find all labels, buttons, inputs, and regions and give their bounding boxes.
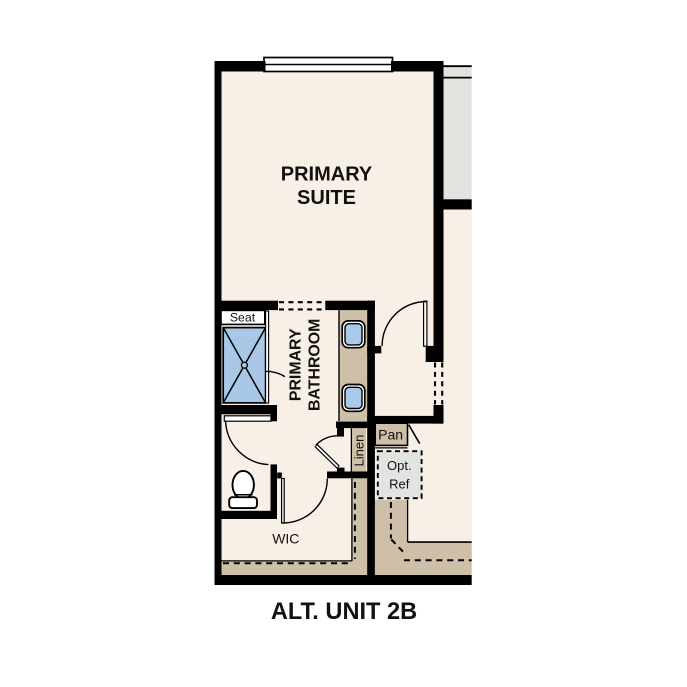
svg-text:WIC: WIC [272,531,299,547]
svg-text:Opt.: Opt. [387,458,412,473]
svg-text:ALT. UNIT 2B: ALT. UNIT 2B [271,599,417,625]
svg-text:Ref: Ref [389,477,410,492]
svg-text:BATHROOM: BATHROOM [307,319,324,411]
svg-text:Pan: Pan [378,427,403,443]
svg-text:Linen: Linen [351,435,366,467]
svg-text:PRIMARY: PRIMARY [288,328,305,401]
svg-text:PRIMARY: PRIMARY [281,164,373,186]
svg-text:Seat: Seat [230,311,256,325]
svg-text:SUITE: SUITE [297,187,356,209]
